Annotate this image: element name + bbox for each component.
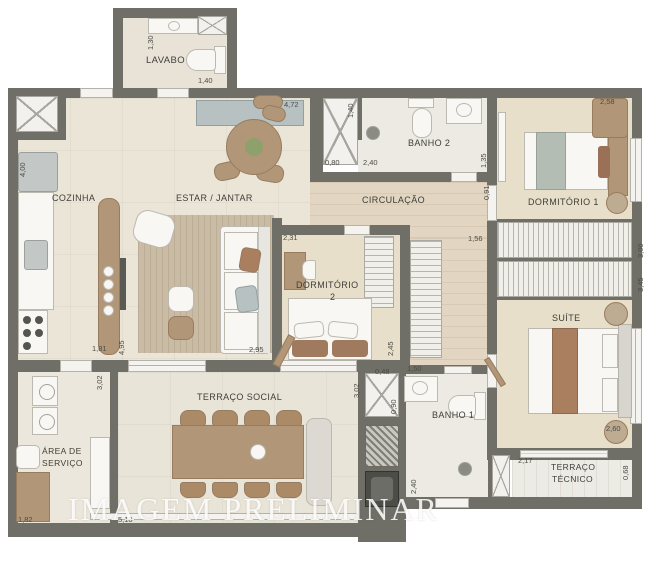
room-label-circulacao: CIRCULAÇÃO [362,195,425,205]
dryer-door [39,414,55,430]
room-label-suite: SUÍTE [552,313,581,323]
banho2-sink-basin [456,103,472,117]
door-sill-dormitorio2 [344,225,370,235]
dimension-label: 1,81 [92,344,107,353]
wall [400,225,410,372]
wall [206,360,280,372]
room-label-area-servico-line1: ÁREA DE [42,446,82,456]
dormitorio1-mirror [498,112,506,182]
nightstand [604,302,628,326]
throw-pillow [238,246,262,273]
bed-runner [552,328,578,414]
terrace-chair [212,410,238,426]
lavabo-sink-basin [168,21,180,31]
dimension-label: 2,31 [283,233,298,242]
shower-head-icon [458,462,472,476]
bed-pillow [292,340,328,357]
wall [227,8,237,98]
dimension-label: 3,45 [636,277,645,292]
bed-pillow [598,146,610,178]
shaft-duct [492,455,510,497]
kitchen-sink [24,240,48,270]
laundry-sink [16,445,40,469]
sofa-backrest [258,227,270,353]
dimension-label: 4,72 [284,100,299,109]
door-sill-banho1 [444,366,472,374]
terrace-chair [276,410,302,426]
burner [23,316,31,324]
stove [18,310,48,354]
shaft-duct [198,16,227,35]
terrace-chair [244,410,270,426]
dimension-label: 0,90 [389,399,398,414]
dryer [32,407,58,435]
dimension-label: 1,35 [479,153,488,168]
bar-stool [103,279,114,290]
bed-blanket [536,132,566,190]
room-label-terraco-tecnico-line2: TÉCNICO [552,474,593,484]
dimension-label: 2,58 [600,97,615,106]
bed-headboard [618,324,632,418]
dimension-label: 2,95 [249,345,264,354]
dormitorio1-closet [497,222,632,258]
shower-head-icon [366,126,380,140]
burner [35,329,43,337]
table-centerpiece [250,444,266,460]
banho2-toilet-bowl [412,108,432,138]
dormitorio2-window [280,360,357,372]
dimension-label: 1,30 [146,35,155,50]
burner [35,316,43,324]
dimension-label: 4,00 [18,162,27,177]
washer-door [39,384,55,400]
room-label-banho2: BANHO 2 [408,138,450,148]
room-label-dormitorio2-line1: DORMITÓRIO [296,280,359,290]
room-label-lavabo: LAVABO [146,55,185,66]
corridor-closet [410,240,442,358]
suite-closet [497,261,632,297]
bar-stool [103,305,114,316]
tv [120,258,126,310]
wall [123,88,157,98]
door-sill-banho2 [451,172,477,182]
banho1-sink-basin [412,381,428,395]
dimension-label: 0,48 [375,367,390,376]
coffee-table [168,316,194,340]
bed-pillow [332,340,368,357]
dimension-label: 2,40 [363,158,378,167]
floor-plan: LAVABO COZINHA ESTAR / JANTAR CIRCULAÇÃO… [0,0,651,561]
dimension-label: 1,40 [346,103,355,118]
wall [8,360,60,372]
terrace-chair [180,410,206,426]
wall [8,88,18,535]
room-label-area-servico-line2: SERVIÇO [42,458,83,468]
bed-pillow [602,334,618,368]
dimension-label: 1,56 [468,234,483,243]
dimension-label: 1,82 [18,515,33,524]
bar-stool [103,266,114,277]
room-label-terraco-tecnico-line1: TERRAÇO [551,462,595,472]
banho2-toilet-tank [408,98,434,108]
dimension-label: 3,00 [636,243,645,258]
suite-terrace-sill [520,450,608,458]
entry-door-sill [80,88,113,98]
pouf [606,192,628,214]
bed-pillow [327,320,359,339]
dimension-label: 0,80 [325,158,340,167]
bed-pillow [602,378,618,412]
room-label-dormitorio2-line2: 2 [330,292,335,302]
dimension-label: 2,60 [606,424,621,433]
bed-pillow [293,320,325,339]
table-plant [245,138,263,156]
wall [487,98,497,365]
burner [23,329,31,337]
wall [310,95,323,182]
dimension-label: 2,17 [518,456,533,465]
room-label-dormitorio1: DORMITÓRIO 1 [528,197,599,207]
wall [189,88,237,98]
terrace-glass-door [128,360,206,372]
desk-chair [302,260,316,280]
coffee-table [168,286,194,312]
terrace-table [172,425,304,479]
wall [92,360,128,372]
shaft-duct [16,96,58,132]
dimension-label: 2,45 [386,341,395,356]
dimension-label: 1,50 [407,364,422,373]
throw-pillow [234,285,259,314]
room-label-cozinha: COZINHA [52,193,95,203]
dimension-label: 4,95 [117,340,126,355]
door-sill-servico [60,360,92,372]
room-label-terraco-social: TERRAÇO SOCIAL [197,392,282,402]
room-label-banho1: BANHO 1 [432,410,474,420]
dimension-label: 3,02 [352,383,361,398]
burner [23,342,31,350]
wall [113,8,123,98]
bar-stool [103,292,114,303]
dimension-label: 0,68 [621,465,630,480]
lavabo-toilet-bowl [186,49,216,71]
dormitorio1-window [630,138,642,202]
dimension-label: 0,91 [482,185,491,200]
wall [497,297,632,300]
door-sill-lavabo [157,88,189,98]
room-label-estar-jantar: ESTAR / JANTAR [176,193,253,203]
bbq-grill [365,425,399,467]
banho1-window-sill [435,498,469,508]
dimension-label: 3,02 [95,375,104,390]
washer [32,376,58,406]
watermark: IMAGEM PRELIMINAR [68,491,439,528]
wall [237,88,642,98]
dimension-label: 1,40 [198,76,213,85]
